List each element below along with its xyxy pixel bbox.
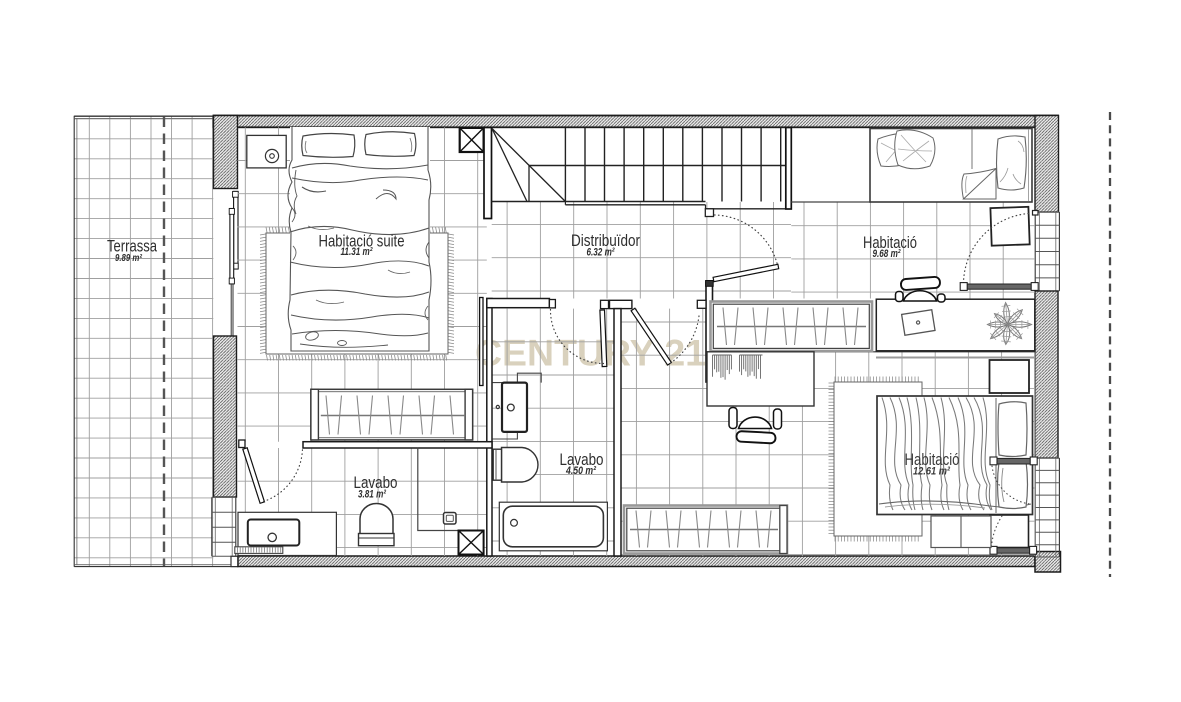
svg-text:4.50 m²: 4.50 m² bbox=[565, 465, 596, 477]
svg-text:3.81 m²: 3.81 m² bbox=[358, 488, 386, 500]
svg-text:11.31 m²: 11.31 m² bbox=[341, 246, 373, 258]
svg-text:12.61 m²: 12.61 m² bbox=[913, 465, 950, 477]
svg-text:9.89 m²: 9.89 m² bbox=[115, 252, 142, 264]
svg-text:6.32 m²: 6.32 m² bbox=[587, 246, 615, 258]
svg-text:CENTURY 21: CENTURY 21 bbox=[475, 333, 706, 374]
svg-text:9.68 m²: 9.68 m² bbox=[873, 248, 901, 260]
